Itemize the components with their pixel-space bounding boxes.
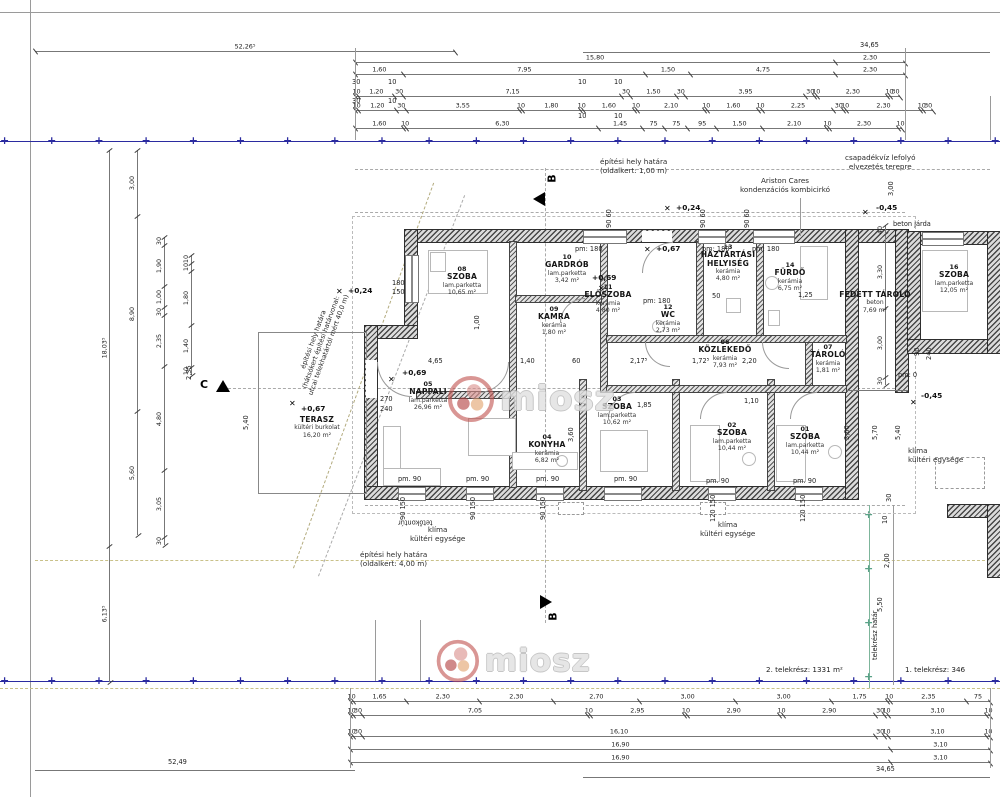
dim-segment: 18,03⁵	[100, 150, 110, 547]
frame-top-line	[0, 12, 1000, 13]
plot1-label: 1. telekrész: 346	[905, 666, 965, 674]
dim-label: 3,00	[888, 181, 895, 196]
dim-segment: 1,60	[355, 119, 404, 129]
section-b-bottom-arrow	[540, 595, 552, 609]
dim-segment: 15,80	[355, 53, 835, 63]
dim-label: 240	[380, 406, 393, 413]
dim-label: 120 150	[800, 495, 807, 522]
watermark-text: miosz	[500, 379, 615, 419]
dim-segment: 3,00	[736, 692, 832, 702]
window-sill-label: pm. 90	[398, 476, 421, 483]
dim-label: 5,50	[877, 597, 884, 612]
window-sill-label: pm: 180	[643, 298, 671, 305]
yard-wall-v	[988, 505, 1000, 577]
level-line-top	[355, 212, 905, 213]
setback-note-top: építési hely határa (oldalkert: 1,00 m)	[600, 157, 667, 175]
dim-label: 90 60	[700, 209, 707, 228]
section-b-bottom: B	[547, 612, 560, 620]
section-b-top-arrow	[533, 192, 545, 206]
dim-bottom-row5: 16,903,10	[350, 753, 990, 763]
level-067b: +0,67	[301, 404, 325, 413]
dim-bottom-row1: 101,652,302,302,703,003,001,75102,3575	[350, 692, 990, 702]
dim-segment: 1,65	[353, 692, 406, 702]
dim-segment: 30	[155, 537, 165, 545]
window-top-1	[583, 230, 627, 244]
dim-segment: 1,00	[155, 286, 165, 308]
level-045b: -0,45	[921, 391, 942, 400]
level-024: +0,24	[676, 203, 700, 212]
dim-top-52: 52,26⁵	[35, 42, 455, 52]
dim-label: 60	[572, 358, 580, 365]
dim-segment: 2,35	[891, 692, 966, 702]
level-symbol: ✕	[388, 375, 395, 384]
room-12-wc: 12 WC kerámia 2,73 m²	[623, 304, 713, 334]
dim-label: 2,00	[884, 553, 891, 568]
partition-v7	[673, 380, 679, 490]
watermark: miosz	[448, 376, 615, 422]
room-04-konyha: 04 KONYHA kerámia 6,82 m²	[502, 434, 592, 464]
ext-line	[355, 48, 356, 140]
dim-label: 1,40	[520, 358, 535, 365]
ac-note-2: klíma kültéri egysége	[700, 520, 755, 538]
dim-label: 30	[886, 494, 893, 502]
ext-line	[420, 620, 421, 681]
dim-segment: 5,60	[128, 412, 138, 535]
dim-left-col3: 301,901,00302,354,803,0530	[155, 237, 165, 545]
window-sill-label: pm: 180	[575, 246, 603, 253]
dim-segment: 10	[182, 255, 192, 263]
dim-label: 2,17⁵	[630, 358, 647, 365]
dim-label: 3,60	[844, 425, 851, 440]
dim-segment: 3,00	[640, 692, 736, 702]
dim-bottom-row2: 10307,05102,95102,90102,9030103,1010	[350, 706, 990, 716]
window-bottom-4	[604, 487, 642, 501]
dim-label: 1,85	[637, 402, 652, 409]
dim-segment: 52,26⁵	[35, 42, 455, 52]
dim-segment: 1,20	[358, 87, 395, 97]
watermark-2: miosz	[437, 640, 591, 682]
room-14-furdo: 14 FÜRDŐ kerámia 6,75 m²	[745, 262, 835, 292]
dim-segment: 10	[182, 263, 192, 271]
room-08-szoba: 08 SZOBA lam.parketta 10,65 m²	[417, 266, 507, 296]
window-sill-label: pm. 90	[466, 476, 489, 483]
dim-tiny: 30	[352, 79, 360, 86]
dim-segment: 3,10	[888, 727, 987, 737]
dim-label: 1,00	[474, 315, 481, 330]
watermark-logo-icon	[437, 640, 479, 682]
dim-tiny: 10	[614, 79, 622, 86]
dim-segment: 1,60	[708, 101, 759, 111]
dim-segment: 2,90	[783, 706, 875, 716]
entrance-opening	[642, 231, 672, 242]
terrace-opening	[366, 360, 377, 398]
dim-bottom-5249-line	[35, 770, 355, 771]
dim-label: 1,72⁵	[692, 358, 709, 365]
dim-segment: 7,95	[404, 65, 646, 75]
dim-label: 2,20	[742, 358, 757, 365]
window-top-3	[753, 230, 795, 244]
boundary-offset-line	[0, 688, 1000, 689]
dim-label: 5,40	[895, 425, 902, 440]
window-sill-label: pm: 180	[752, 246, 780, 253]
plot-split-line2	[893, 505, 894, 685]
dim-segment: 6,13⁵	[100, 547, 110, 682]
dim-segment: 2,10	[762, 119, 826, 129]
dim-label: 270	[380, 396, 393, 403]
sidewalk-label: beton járda	[893, 221, 931, 228]
level-069b: +0,69	[402, 368, 426, 377]
dim-segment: 1,45	[598, 119, 642, 129]
dim-left-col1: 18,03⁵6,13⁵	[100, 150, 110, 682]
dim-segment: 2,35	[155, 316, 165, 367]
dim-segment: 10	[899, 119, 902, 129]
plot-split-label: telekrész határ	[872, 610, 879, 660]
dim-segment: 1,50	[717, 119, 763, 129]
dim-segment: 3,10	[891, 753, 990, 763]
level-symbol: ✕	[644, 245, 651, 254]
dim-label: 90 60	[744, 209, 751, 228]
dim-top-3465: 34,65	[860, 42, 879, 49]
dim-segment: 3,55	[406, 101, 519, 111]
dim-top-row1: 15,802,30	[355, 53, 905, 63]
dim-segment: 3,95	[685, 87, 805, 97]
dim-segment: 40	[876, 225, 886, 234]
dim-bottom-row3: 103016,1030103,1010	[350, 727, 990, 737]
dim-segment: 2,90	[688, 706, 780, 716]
dim-segment: 8,90	[128, 216, 138, 412]
dim-segment: 30	[876, 377, 886, 385]
plot2-label: 2. telekrész: 1331 m²	[766, 666, 843, 674]
level-symbol: ✕	[598, 284, 605, 293]
carport-open-edge	[846, 390, 908, 391]
dim-segment: 1,20	[358, 101, 396, 111]
level-symbol: ✕	[910, 398, 917, 407]
room-fedett-tarolo: FEDETT TÁROLÓ beton 7,69 m²	[838, 291, 912, 314]
dim-label: 120 150	[710, 495, 717, 522]
dim-segment: 7,15	[404, 87, 622, 97]
window-sill-label: pm. 90	[614, 476, 637, 483]
window-sill-label: pm. 90	[793, 478, 816, 485]
dim-segment: 1,60	[583, 101, 634, 111]
boiler-leader	[800, 198, 801, 236]
ext-line	[350, 688, 351, 768]
window-outbuilding	[922, 232, 964, 246]
bed-room03	[600, 430, 648, 472]
plot-split-line	[869, 505, 870, 688]
dim-label: 50	[712, 293, 720, 300]
dim-top-row2: 1,607,951,504,752,30	[355, 65, 905, 75]
section-b-top: B	[546, 174, 559, 182]
dim-segment: 7,05	[363, 706, 587, 716]
outbuilding-wall-mid	[908, 340, 1000, 353]
dim-label: 180	[392, 280, 405, 287]
dim-segment: 1,75	[832, 692, 888, 702]
dim-segment: 2,30	[406, 692, 480, 702]
frame-left-line	[30, 0, 31, 797]
dim-label: 150	[392, 289, 405, 296]
dim-label: 90 150	[470, 497, 477, 520]
window-sill-label: pm. 90	[706, 478, 729, 485]
watermark-text: miosz	[485, 643, 591, 680]
dim-segment: 30	[891, 87, 900, 97]
dim-tiny: 10	[578, 79, 586, 86]
dim-segment: 2,30	[835, 65, 905, 75]
dim-segment: 16,10	[363, 727, 876, 737]
dim-label: 3,60	[568, 427, 575, 442]
room-07-tarolo: 07 TÁROLÓ kerámia 1,81 m²	[783, 344, 873, 374]
dim-segment: 30	[155, 237, 165, 245]
dim-segment: 2,30	[818, 87, 888, 97]
dim-segment: 3,10	[891, 740, 990, 750]
window-top-2	[698, 230, 726, 244]
dim-segment: 3,00	[876, 309, 886, 377]
dim-label: 90 150	[400, 497, 407, 520]
dim-segment: 2,30	[847, 101, 920, 111]
dim-segment: 2,25	[762, 101, 834, 111]
dim-segment: 6,30	[407, 119, 598, 129]
room-16-szoba: 16 SZOBA lam.parketta 12,05 m²	[912, 264, 996, 294]
dim-segment: 2,30	[829, 119, 899, 129]
washing-machine	[726, 298, 741, 313]
dim-segment: 2,70	[553, 692, 639, 702]
ac-note-right: klíma kültéri egysége	[908, 446, 963, 464]
dim-segment: 1,80	[182, 271, 192, 325]
dim-top-row3: 101,20307,15301,50303,9530102,301030	[355, 87, 900, 97]
dim-segment: 16,90	[350, 753, 891, 763]
dim-segment: 75	[642, 119, 665, 129]
window-sill-label: pm. 90	[536, 476, 559, 483]
level-symbol: ✕	[664, 204, 671, 213]
dim-segment: 2,30	[835, 53, 905, 63]
ac-note-1: klíma kültéri egysége	[410, 525, 465, 543]
ac-unit-box-1	[558, 502, 584, 515]
room-01-szoba: 01 SZOBA lam.parketta 10,44 m²	[760, 426, 850, 456]
dim-label: 90 60	[606, 209, 613, 228]
level-067: +0,67	[656, 244, 680, 253]
dim-label: 10	[882, 516, 889, 524]
dim-tiny: 10	[388, 79, 396, 86]
dim-bottom-row4: 16,903,10	[350, 740, 990, 750]
dim-segment: 1,60	[355, 65, 404, 75]
rainwater-note: csapadékvíz lefolyó elvezetés terepre	[845, 153, 916, 171]
level-069: +0,69	[592, 273, 616, 282]
dim-segment: 30	[923, 101, 933, 111]
table-room02	[742, 452, 756, 466]
dim-segment: 75	[966, 692, 990, 702]
boiler-note: Ariston Cares kondenzációs kombicirkó	[740, 176, 830, 194]
bath-wc	[768, 310, 780, 326]
plot-boundary-top	[0, 141, 1000, 142]
dim-segment: 3,00	[128, 150, 138, 216]
dim-label: 1,10	[744, 398, 759, 405]
dim-label: 90	[914, 348, 921, 356]
dim-label: 4,65	[428, 358, 443, 365]
dim-top-row5: 1,60106,301,457575951,502,10102,3010	[355, 119, 902, 129]
dim-segment: 3,10	[888, 706, 987, 716]
dim-segment: 4,75	[691, 65, 835, 75]
dim-left-col2: 3,008,905,60	[128, 150, 138, 535]
dim-segment: 1,80	[523, 101, 580, 111]
dim-segment: 1,90	[155, 245, 165, 286]
section-c-marker: C	[200, 378, 208, 391]
dim-bottom-5249: 52,49	[168, 759, 187, 766]
dim-segment: 2,30	[480, 692, 554, 702]
dim-segment: 2,10	[638, 101, 705, 111]
dim-label: 240	[926, 347, 933, 360]
level-024b: +0,24	[348, 286, 372, 295]
dim-label: 2,35	[186, 365, 193, 380]
side-setback-bottom-line	[35, 560, 990, 561]
floor-plan-drawing: ++++++++++++++++++++++ +++++++++++++++++…	[0, 0, 1000, 797]
dim-segment: 3,05	[155, 471, 165, 537]
level-symbol: ✕	[862, 208, 869, 217]
watermark-logo-icon	[448, 376, 494, 422]
dim-top-row4: 101,20303,55101,80101,60102,10101,60102,…	[355, 101, 933, 111]
dim-bottom-3465: 34,65	[876, 766, 895, 773]
ext-line	[375, 620, 376, 681]
dim-left-col4: 10101,801,4010	[182, 255, 192, 375]
window-sill-label: pm: 180	[702, 246, 730, 253]
dim-segment: 75	[665, 119, 688, 129]
dim-label: 5,40	[243, 415, 250, 430]
dim-segment: 2,95	[590, 706, 684, 716]
room-terasz: TERASZ kültéri burkolat 16,20 m²	[272, 416, 362, 439]
dim-segment: 4,80	[155, 367, 165, 471]
window-sill-label: pm: 0	[898, 372, 917, 379]
level-045: -0,45	[876, 203, 897, 212]
dim-segment: 1,40	[182, 325, 192, 367]
dim-label: 90 150	[540, 497, 547, 520]
section-c-arrow	[216, 380, 230, 392]
dim-label: 5,70	[872, 425, 879, 440]
dim-segment: 1,50	[631, 87, 677, 97]
setback-note-bottom: építési hely határa (oldalkert: 4,00 m)	[360, 550, 427, 568]
level-symbol: ✕	[289, 399, 296, 408]
dim-bottom-3465-line	[583, 777, 990, 778]
ext-line	[990, 688, 991, 768]
dim-label: 1,25	[798, 292, 813, 299]
dim-segment: 16,90	[350, 740, 891, 750]
dim-segment: 1,50	[645, 65, 691, 75]
dim-segment: 95	[688, 119, 717, 129]
ext-line	[990, 96, 991, 140]
ext-line	[905, 48, 906, 140]
